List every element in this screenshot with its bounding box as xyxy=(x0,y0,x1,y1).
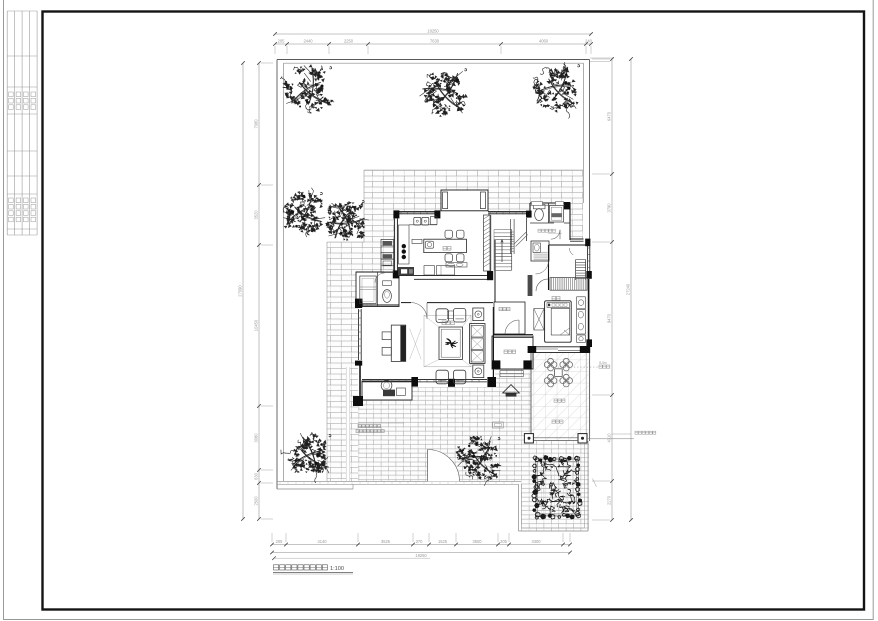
svg-text:3520: 3520 xyxy=(253,210,258,220)
svg-text:7630: 7630 xyxy=(430,38,440,43)
svg-text:4310: 4310 xyxy=(606,433,611,443)
svg-text:7080: 7080 xyxy=(253,119,258,129)
svg-text:18250: 18250 xyxy=(415,553,427,558)
svg-text:205: 205 xyxy=(500,539,508,544)
svg-text:3500: 3500 xyxy=(472,539,482,544)
svg-text:27090: 27090 xyxy=(237,285,242,297)
svg-text:630: 630 xyxy=(253,472,258,480)
svg-text:2500: 2500 xyxy=(253,496,258,506)
svg-text:18250: 18250 xyxy=(427,28,439,33)
svg-text:205: 205 xyxy=(278,38,286,43)
svg-text:4140: 4140 xyxy=(317,539,327,544)
svg-text:27240: 27240 xyxy=(625,283,630,295)
svg-text:6470: 6470 xyxy=(606,111,611,121)
svg-text:1:100: 1:100 xyxy=(330,566,344,572)
svg-text:2250: 2250 xyxy=(344,38,354,43)
svg-text:240: 240 xyxy=(585,38,593,43)
svg-text:3790: 3790 xyxy=(606,203,611,213)
svg-text:3300: 3300 xyxy=(531,539,541,544)
svg-text:9470: 9470 xyxy=(606,313,611,323)
svg-text:3080: 3080 xyxy=(253,433,258,443)
svg-text:3525: 3525 xyxy=(381,539,391,544)
svg-text:370: 370 xyxy=(416,539,424,544)
svg-text:1525: 1525 xyxy=(438,539,448,544)
svg-text:2270: 2270 xyxy=(606,495,611,505)
svg-text:205: 205 xyxy=(276,539,284,544)
svg-text:10450: 10450 xyxy=(253,319,258,331)
svg-text:B.5m: B.5m xyxy=(599,361,607,365)
svg-text:2440: 2440 xyxy=(303,38,313,43)
svg-text:4060: 4060 xyxy=(539,38,549,43)
